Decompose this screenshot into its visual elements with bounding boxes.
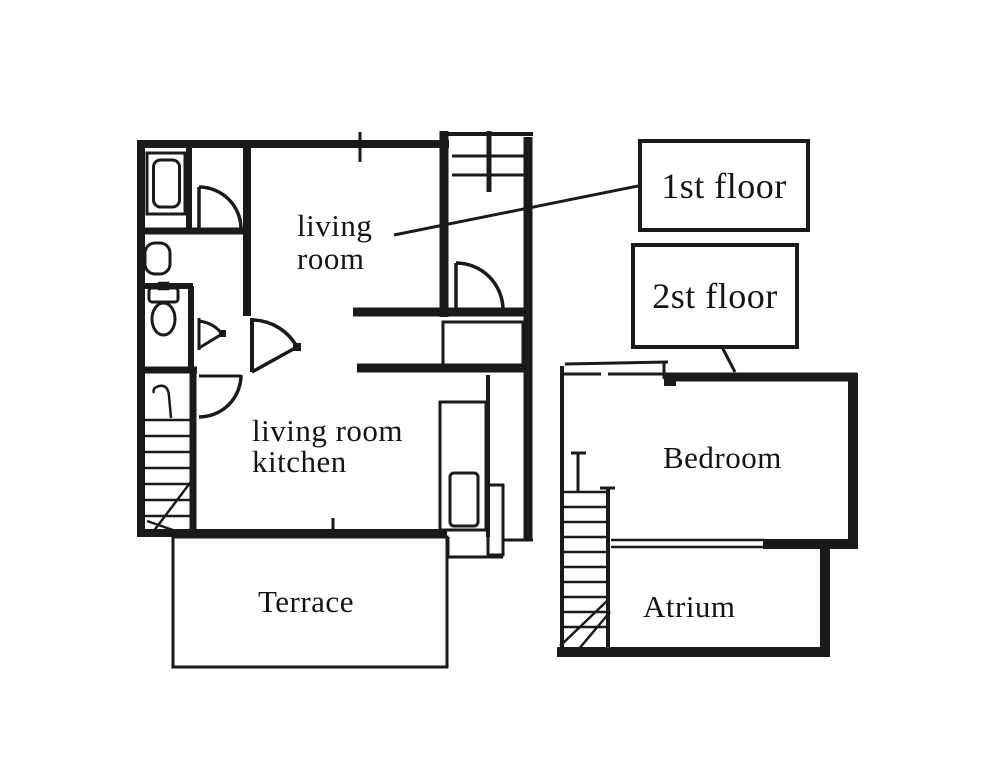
callout-label-first-floor: 1st floor [661, 166, 787, 206]
leader-line-second-floor [722, 347, 735, 372]
entry-stairs-icon [445, 131, 533, 192]
floor-plan-drawing: living room living room kitchen Terrace [0, 0, 1000, 775]
first-floor-stairs-icon [145, 386, 193, 537]
second-floor-stairs-icon [560, 453, 615, 650]
door-arc-entry [456, 263, 503, 310]
door-arc-toilet [199, 318, 226, 350]
kitchen-counter-icon [440, 375, 533, 557]
stair-rail-hook [154, 386, 171, 418]
room-label-ldk-line2: kitchen [252, 444, 347, 479]
second-floor-plan: Bedroom Atrium [557, 361, 858, 656]
room-label-living-room-line2: room [297, 241, 364, 276]
first-floor-plan: living room living room kitchen Terrace [137, 131, 533, 667]
callout-second-floor: 2st floor [633, 245, 797, 372]
kitchen-sink [450, 473, 478, 526]
window-symbol [563, 361, 676, 386]
room-label-bedroom: Bedroom [663, 440, 782, 475]
washbasin-icon [145, 243, 170, 274]
room-label-living-room-line1: living [297, 208, 372, 243]
bathtub-icon [147, 153, 185, 214]
room-label-ldk-line1: living room [252, 413, 403, 448]
storage-closet [443, 322, 523, 365]
door-arc-changing-room [199, 187, 241, 229]
door-arc-hall-entrance [199, 375, 241, 417]
toilet-icon [149, 283, 178, 335]
room-label-terrace: Terrace [258, 584, 354, 619]
callout-label-second-floor: 2st floor [652, 276, 778, 316]
room-label-atrium: Atrium [643, 589, 736, 624]
door-arc-hallway [252, 318, 301, 372]
leader-line-first-floor [394, 186, 638, 235]
floor-plan-page: living room living room kitchen Terrace [0, 0, 1000, 775]
